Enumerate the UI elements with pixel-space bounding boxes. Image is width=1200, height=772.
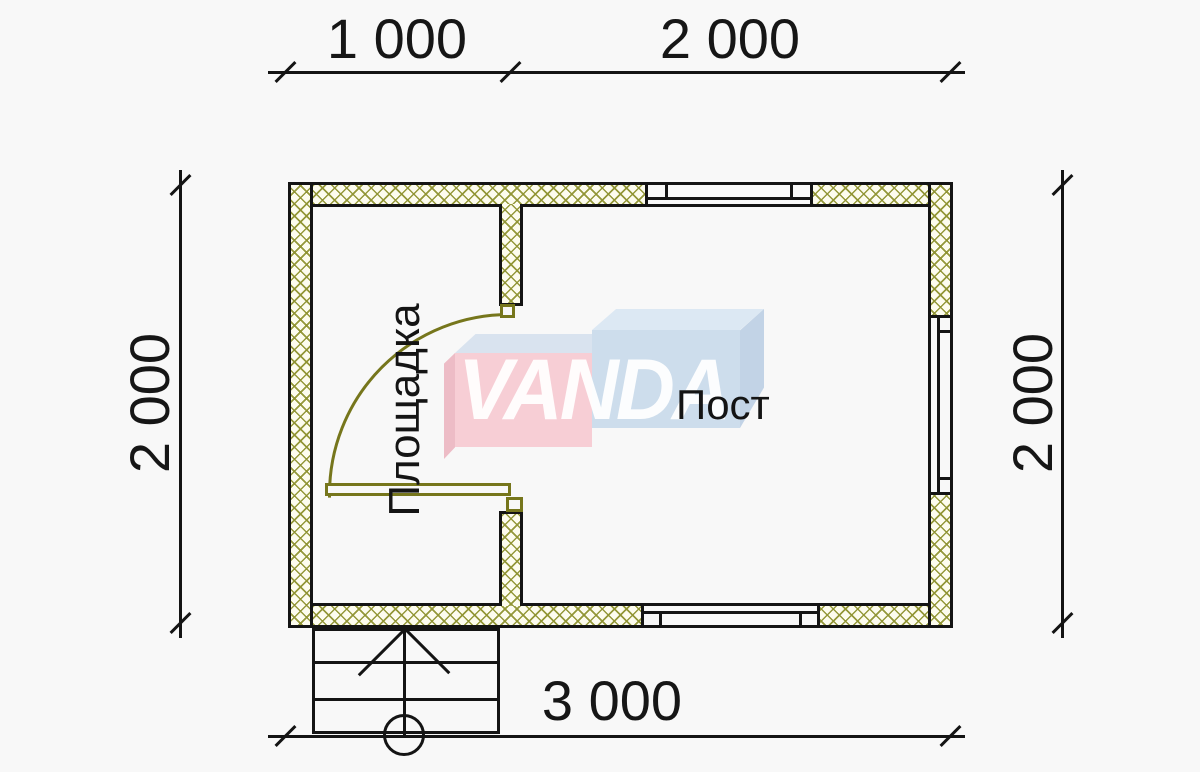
door-jamb-block-top: [500, 304, 515, 318]
door-jamb-block-bottom: [506, 497, 523, 512]
dimension-label-top-1: 1 000: [295, 10, 499, 68]
partition-wall-upper: [499, 204, 523, 306]
dimension-line-bottom: [268, 735, 965, 738]
window-bottom: [641, 603, 820, 628]
wall-bottom: [288, 603, 953, 628]
partition-wall-lower: [499, 511, 523, 606]
window-right: [928, 315, 953, 495]
stair-step-line: [312, 698, 500, 701]
wall-top: [288, 182, 953, 207]
room-label-post: Пост: [676, 381, 770, 429]
dimension-label-left: 2 000: [121, 301, 179, 505]
watermark-blue-top-face: [592, 309, 764, 330]
stair-step-line: [312, 661, 500, 664]
dimension-label-bottom: 3 000: [510, 672, 714, 730]
wall-left: [288, 182, 313, 628]
dimension-label-top-2: 2 000: [628, 10, 832, 68]
dimension-label-right: 2 000: [1004, 301, 1062, 505]
dimension-line-top: [268, 71, 965, 74]
room-label-ploshchadka: Площадка: [381, 288, 429, 532]
floor-plan-drawing: VANDA 1 000 2 00: [0, 0, 1200, 772]
window-top: [645, 182, 813, 207]
